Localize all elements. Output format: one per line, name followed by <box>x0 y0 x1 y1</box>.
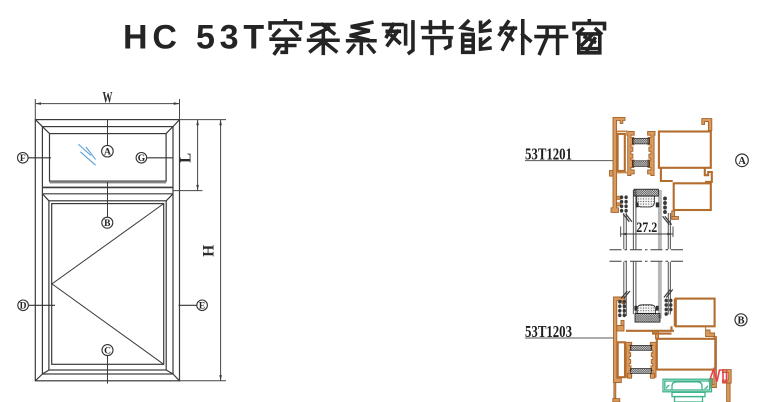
svg-text:A: A <box>104 148 111 158</box>
svg-text:W: W <box>103 90 113 107</box>
svg-text:G: G <box>138 154 146 164</box>
svg-text:E: E <box>199 302 205 312</box>
svg-text:D: D <box>20 302 27 312</box>
svg-text:A: A <box>738 156 746 167</box>
svg-text:HC 53T: HC 53T <box>123 18 269 56</box>
svg-text:H: H <box>201 244 218 257</box>
svg-text:C: C <box>104 346 111 356</box>
svg-text:L: L <box>177 153 194 163</box>
svg-text:F: F <box>20 154 26 164</box>
svg-text:B: B <box>104 219 111 229</box>
svg-text:B: B <box>737 315 744 326</box>
